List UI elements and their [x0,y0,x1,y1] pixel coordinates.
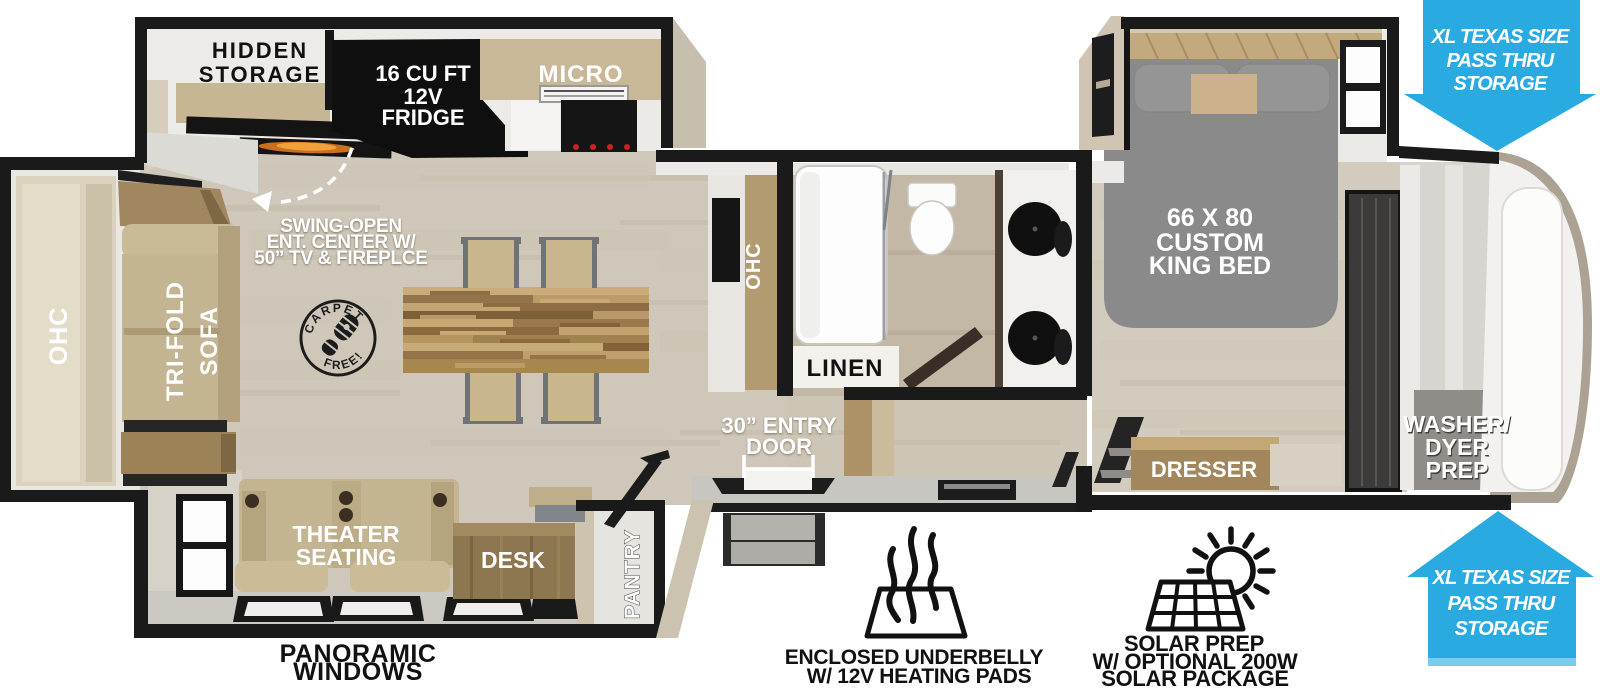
svg-text:PASS THRU: PASS THRU [1447,50,1555,72]
svg-text:PANTRY: PANTRY [621,529,644,619]
svg-text:KING BED: KING BED [1149,252,1271,280]
svg-text:WINDOWS: WINDOWS [293,658,423,686]
svg-text:XL TEXAS SIZE: XL TEXAS SIZE [1431,567,1571,589]
svg-text:W/ 12V HEATING PADS: W/ 12V HEATING PADS [807,665,1032,688]
svg-text:OHC: OHC [743,242,765,289]
svg-text:LINEN: LINEN [807,355,884,382]
svg-text:SEATING: SEATING [296,544,397,570]
svg-text:XL TEXAS SIZE: XL TEXAS SIZE [1430,26,1570,48]
svg-text:STORAGE: STORAGE [1454,73,1548,95]
svg-text:66 X 80: 66 X 80 [1167,204,1253,232]
svg-text:FRIDGE: FRIDGE [381,105,464,130]
svg-text:PASS THRU: PASS THRU [1448,593,1556,615]
svg-text:50” TV & FIREPLCE: 50” TV & FIREPLCE [254,248,427,269]
svg-text:STORAGE: STORAGE [1455,618,1549,640]
svg-text:TRI-FOLD: TRI-FOLD [162,281,189,401]
svg-text:DRESSER: DRESSER [1151,457,1257,482]
svg-text:SOLAR PACKAGE: SOLAR PACKAGE [1101,666,1289,688]
svg-text:HIDDEN: HIDDEN [212,38,308,63]
svg-text:DESK: DESK [481,547,545,573]
svg-text:PREP: PREP [1426,457,1489,483]
svg-text:MICRO: MICRO [539,61,624,88]
svg-text:SOFA: SOFA [196,306,223,375]
svg-text:16 CU FT: 16 CU FT [375,61,471,86]
svg-text:DOOR: DOOR [746,434,812,459]
svg-text:OHC: OHC [45,307,73,366]
svg-text:STORAGE: STORAGE [199,62,321,87]
